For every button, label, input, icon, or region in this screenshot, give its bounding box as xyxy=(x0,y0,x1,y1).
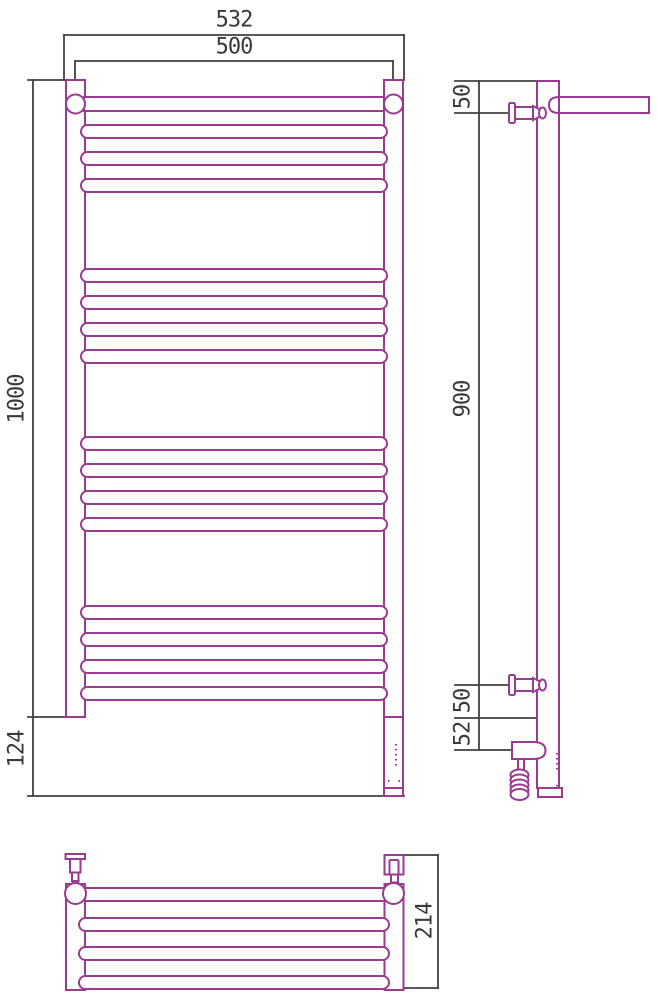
anchor-neck xyxy=(72,873,79,882)
rung-bar xyxy=(81,437,387,450)
shelf-bar xyxy=(79,976,389,989)
rung-bar xyxy=(81,152,387,165)
left-post xyxy=(66,80,85,717)
rung-bar xyxy=(81,464,387,477)
rung-bar xyxy=(81,323,387,336)
dim-label-rail-center-width: 500 xyxy=(216,35,253,60)
rung-bar xyxy=(81,179,387,192)
post-bottom-elbow xyxy=(538,788,562,797)
dim-label-top-offset: 50 xyxy=(451,85,476,110)
dim-label-overall-depth: 214 xyxy=(413,903,438,940)
top-rail-side xyxy=(549,97,649,113)
dim-label-heater-offset: 52 xyxy=(451,722,476,747)
rung-bar xyxy=(81,269,387,282)
heater-body xyxy=(512,742,546,759)
collar-left-plan xyxy=(65,883,86,904)
drawing-canvas: 532 500 1000 124 50 900 50 52 214 xyxy=(0,0,659,1000)
rung-bar xyxy=(81,606,387,619)
collar-left xyxy=(66,95,85,114)
right-post xyxy=(384,80,403,717)
top-rail-plan xyxy=(85,888,385,901)
rung-bar xyxy=(81,518,387,531)
dim-label-lower-section-height: 124 xyxy=(5,731,30,768)
wall-bracket-lower xyxy=(509,675,546,695)
rung-bar xyxy=(81,687,387,700)
shelf-bar xyxy=(79,918,389,931)
wall-anchor-left xyxy=(66,854,86,885)
shelf-bar xyxy=(79,947,389,960)
wall-bracket-upper xyxy=(509,103,546,123)
dim-label-overall-width: 532 xyxy=(216,8,253,33)
dim-label-bracket-span: 900 xyxy=(451,381,476,418)
anchor-cap xyxy=(385,855,404,875)
bracket-knob xyxy=(539,108,546,119)
rung-bar xyxy=(81,660,387,673)
anchor-stem xyxy=(70,859,81,873)
power-cord-spiral xyxy=(511,789,529,800)
heater-housing xyxy=(384,717,403,788)
rung-bar xyxy=(81,296,387,309)
bracket-knob xyxy=(539,680,546,691)
top-rail xyxy=(84,97,384,111)
wall-anchor-right xyxy=(385,855,404,886)
front-view xyxy=(66,80,403,796)
bracket-stem xyxy=(515,679,533,691)
rung-bar xyxy=(81,350,387,363)
heater-housing-foot xyxy=(384,788,403,796)
anchor-neck xyxy=(391,875,398,883)
rung-bar xyxy=(81,491,387,504)
dim-label-bottom-offset: 50 xyxy=(451,689,476,714)
dim-label-overall-height: 1000 xyxy=(5,375,30,424)
rung-bar xyxy=(81,125,387,138)
collar-right-plan xyxy=(383,883,404,904)
bracket-stem xyxy=(515,107,533,119)
collar-right xyxy=(384,95,403,114)
top-view xyxy=(65,854,404,990)
technical-drawing xyxy=(0,0,659,1000)
rung-bar xyxy=(81,633,387,646)
side-view xyxy=(509,81,649,800)
